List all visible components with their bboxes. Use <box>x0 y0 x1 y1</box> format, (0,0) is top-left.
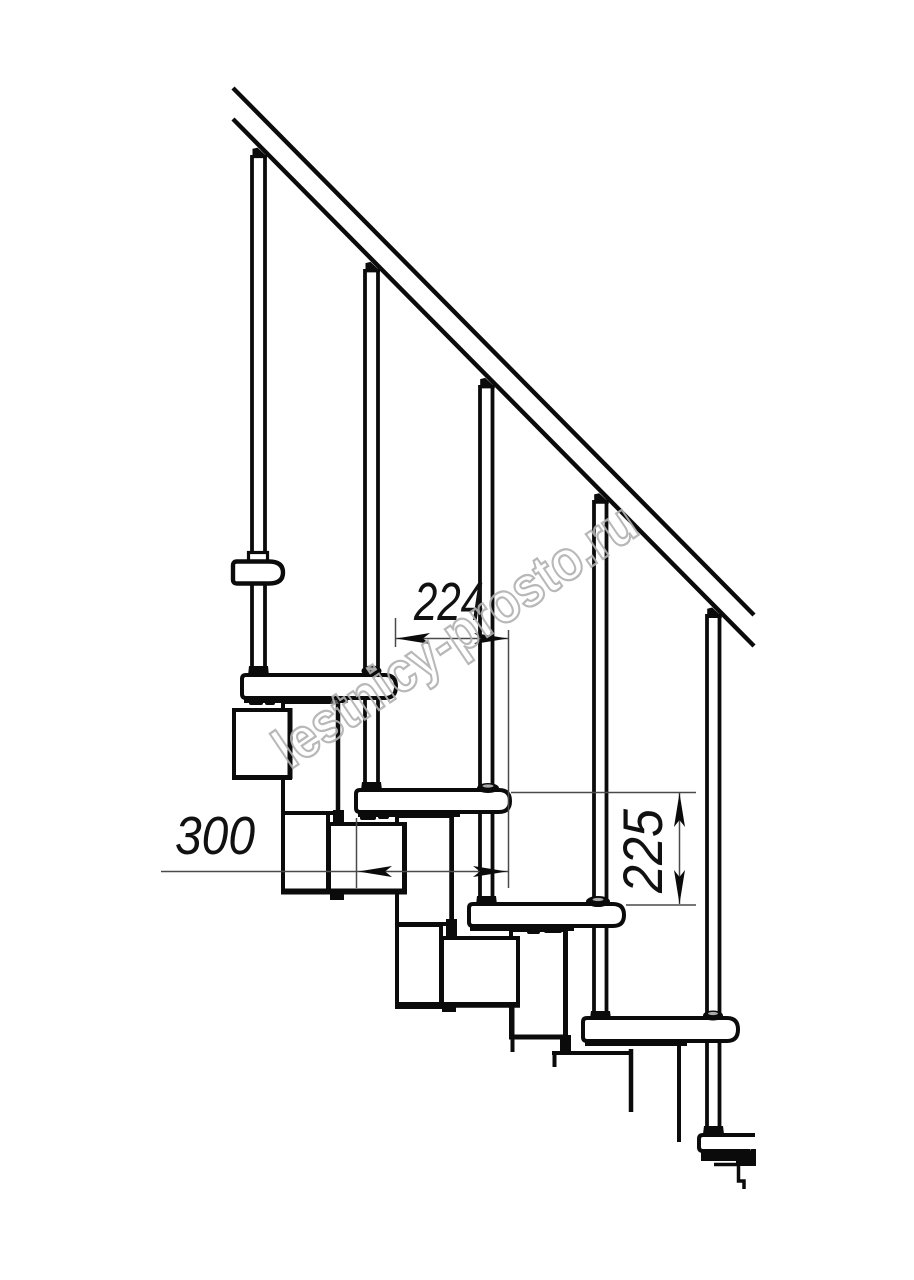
svg-text:225: 225 <box>611 808 674 894</box>
svg-text:300: 300 <box>175 806 255 866</box>
